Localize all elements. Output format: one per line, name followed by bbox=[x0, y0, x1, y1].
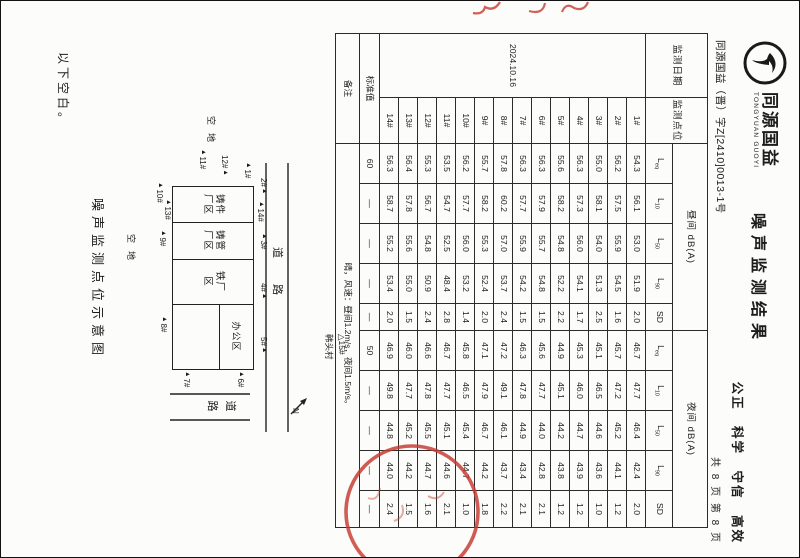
monitoring-point-marker: ▲9# bbox=[158, 230, 167, 246]
triangle-marker-icon: ▲ bbox=[164, 199, 171, 205]
marker-label: 8# bbox=[159, 323, 168, 332]
monitoring-point-marker: ▲8# bbox=[159, 316, 168, 332]
marker-label: 4# bbox=[259, 283, 268, 292]
monitoring-point-marker: ▲11# bbox=[198, 149, 207, 169]
marker-label: 7# bbox=[182, 378, 191, 387]
triangle-marker-icon: ▲ bbox=[260, 188, 267, 194]
block-label-iron: 铁厂区 bbox=[201, 259, 225, 304]
village-marker: △15# bbox=[335, 334, 348, 360]
monitoring-point-marker: 2#▲ bbox=[259, 178, 268, 194]
triangle-marker-icon: ▲ bbox=[260, 347, 267, 353]
marker-label: 9# bbox=[158, 237, 167, 246]
triangle-marker-icon: ▲ bbox=[237, 371, 244, 377]
scanned-report-canvas: { "page": { "logo_cn": "同源国益", "logo_en"… bbox=[0, 0, 800, 558]
site-diagram: 铸件厂区 铸管厂区 铁厂区 办公区 道路 道路 空地 空地 △15# 韩头村 ▲… bbox=[0, 0, 800, 558]
marker-label: 12# bbox=[220, 155, 229, 168]
marker-label: 10# bbox=[155, 189, 164, 202]
monitoring-point-marker: ▲13# bbox=[163, 199, 172, 220]
village-name: 韩头村 bbox=[323, 334, 336, 360]
monitoring-point-marker: ▲6# bbox=[236, 371, 245, 387]
office-area-label: 办公区 bbox=[220, 304, 253, 369]
marker-label: 14# bbox=[256, 208, 265, 221]
block-label-pipe: 铸管厂区 bbox=[201, 222, 225, 259]
triangle-marker-icon: ▲ bbox=[183, 371, 190, 377]
monitoring-point-marker: ▲3# bbox=[259, 233, 268, 249]
triangle-marker-icon: ▲ bbox=[160, 316, 167, 322]
triangle-marker-icon: ▲ bbox=[199, 149, 206, 155]
triangle-marker-icon: ▲ bbox=[257, 201, 264, 207]
open-land-label-bottom: 空地 bbox=[125, 234, 138, 268]
block-label-casting: 铸件厂区 bbox=[201, 187, 225, 222]
marker-label: 11# bbox=[198, 156, 207, 169]
open-land-label-left: 空地 bbox=[205, 116, 218, 150]
monitoring-point-marker: 12#▲ bbox=[220, 155, 229, 176]
marker-label: 13# bbox=[163, 206, 172, 219]
closing-note: 以下空白。 bbox=[55, 52, 72, 127]
monitoring-point-marker: 5#▲ bbox=[259, 337, 268, 353]
marker-label: 2# bbox=[259, 178, 268, 187]
triangle-marker-icon: ▲ bbox=[221, 169, 228, 175]
marker-label: 6# bbox=[236, 378, 245, 387]
report-page: 同源国益 TONGYUAN GUOYI 噪声监测结果 公正 科学 守信 高效 同… bbox=[0, 0, 800, 558]
marker-label: 3# bbox=[259, 240, 268, 249]
road-label-horizontal: 道路 bbox=[270, 247, 286, 321]
marker-label: 1# bbox=[243, 169, 252, 178]
road-label-vertical: 道路 bbox=[203, 400, 238, 412]
diagram-title: 噪声监测点位示意图 bbox=[89, 0, 108, 558]
marker-label: 5# bbox=[259, 337, 268, 346]
monitoring-point-marker: 4#▲ bbox=[259, 283, 268, 299]
triangle-marker-icon: ▲ bbox=[260, 293, 267, 299]
monitoring-point-marker: ▲1# bbox=[243, 162, 252, 178]
triangle-marker-icon: ▲ bbox=[159, 230, 166, 236]
triangle-marker-icon: ▲ bbox=[244, 162, 251, 168]
triangle-marker-icon: ▲ bbox=[260, 233, 267, 239]
monitoring-point-marker: ▲14# bbox=[256, 201, 265, 222]
plant-outline: 铸件厂区 铸管厂区 铁厂区 办公区 bbox=[172, 186, 254, 370]
monitoring-point-marker: ▲10# bbox=[155, 182, 164, 203]
monitoring-point-marker: ▲7# bbox=[182, 371, 191, 387]
triangle-marker-icon: ▲ bbox=[156, 182, 163, 188]
village-label: △15# 韩头村 bbox=[323, 334, 349, 360]
